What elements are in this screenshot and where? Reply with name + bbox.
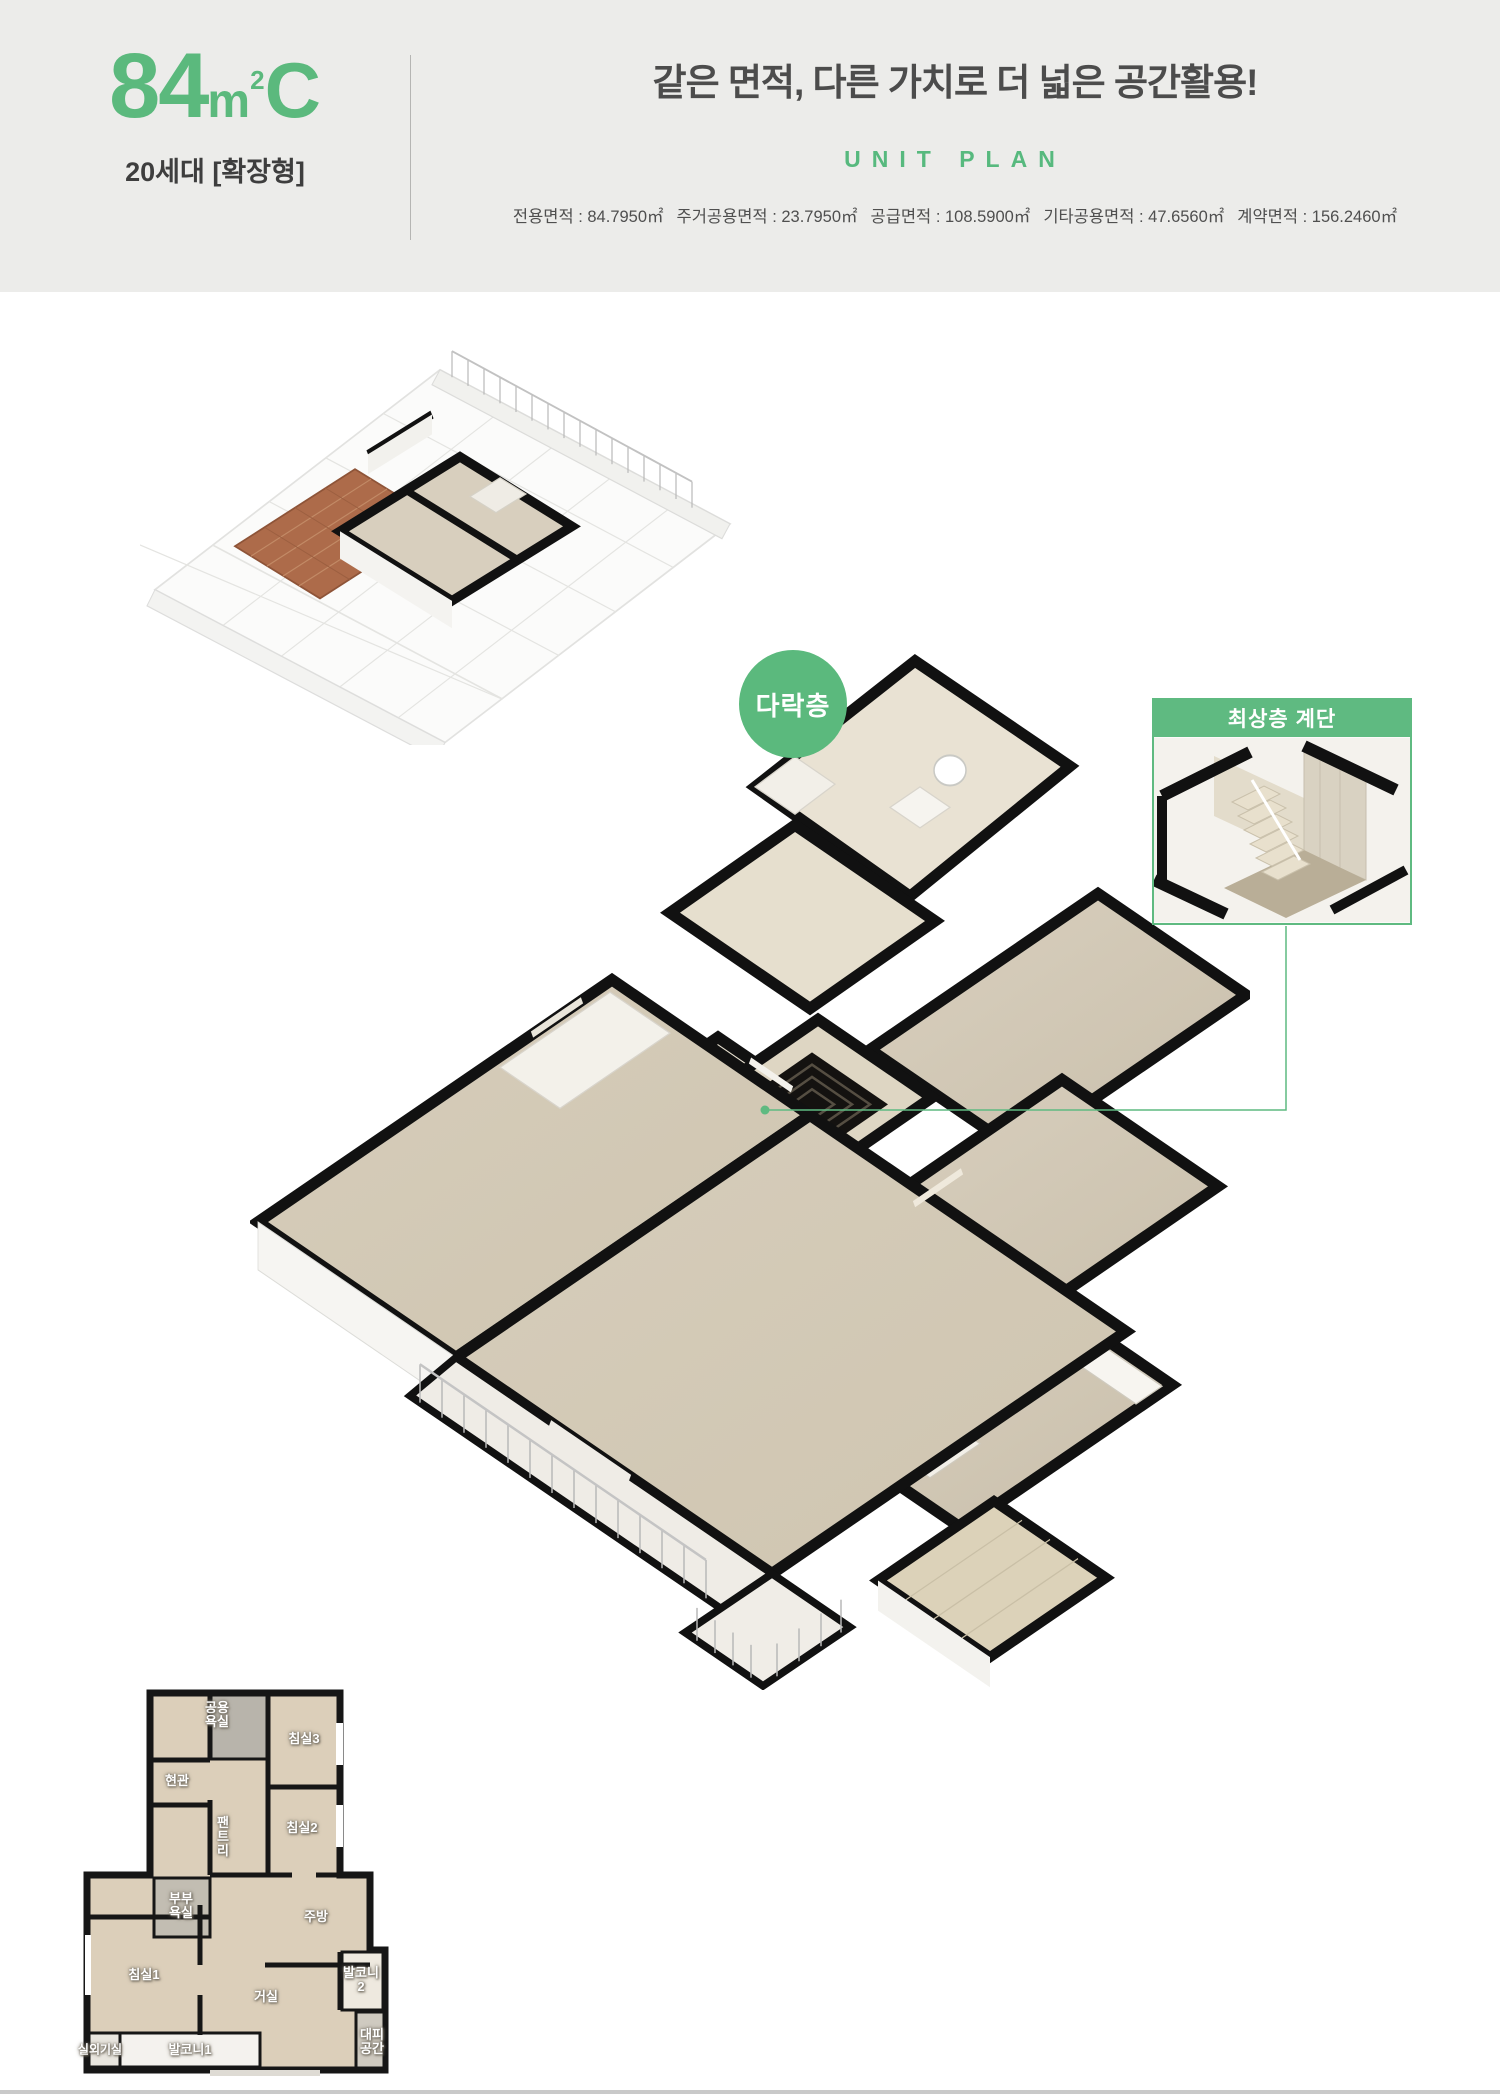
unit-plan-label: UNIT PLAN (420, 146, 1490, 173)
unit-number: 84 (109, 35, 207, 137)
unit-subtitle: 20세대 [확장형] (40, 150, 390, 189)
room-label-master-bath: 부부 욕실 (169, 1892, 193, 1920)
unit-type-letter: C (265, 46, 321, 134)
room-label-bedroom2: 침실2 (286, 1821, 317, 1835)
area-item: 계약면적 : 156.2460㎡ (1237, 203, 1397, 227)
room-label-pantry: 팬 트 리 (217, 1816, 229, 1858)
stairs-illustration (1154, 737, 1410, 923)
room-label-ac-room: 실외기실 (78, 2044, 122, 2057)
stairs-callout-image (1152, 737, 1412, 925)
room-label-kitchen: 주방 (304, 1910, 328, 1924)
room-label-refuge: 대피 공간 (360, 2028, 384, 2056)
unit-size-label: 84m2C (40, 40, 390, 132)
area-item: 주거공용면적 : 23.7950㎡ (677, 203, 858, 227)
header: 84m2C 20세대 [확장형] 같은 면적, 다른 가치로 더 넓은 공간활용… (0, 0, 1500, 292)
area-item: 기타공용면적 : 47.6560㎡ (1043, 203, 1224, 227)
header-divider (410, 55, 411, 240)
attic-badge: 다락층 (739, 650, 847, 758)
unit-size-block: 84m2C 20세대 [확장형] (40, 40, 390, 189)
room-label-balcony2: 발코니2 (342, 1966, 381, 1994)
unit-plan-page: 84m2C 20세대 [확장형] 같은 면적, 다른 가치로 더 넓은 공간활용… (0, 0, 1500, 2097)
unit-superscript: 2 (250, 65, 264, 95)
page-title: 같은 면적, 다른 가치로 더 넓은 공간활용! (420, 52, 1490, 106)
area-item: 전용면적 : 84.7950㎡ (513, 203, 664, 227)
room-label-bedroom3: 침실3 (288, 1732, 319, 1746)
main-floor-plan-image (250, 650, 1250, 1690)
stairs-callout-title: 최상층 계단 (1152, 698, 1412, 737)
room-label-entrance: 현관 (165, 1774, 189, 1788)
header-right: 같은 면적, 다른 가치로 더 넓은 공간활용! UNIT PLAN 전용면적 … (420, 0, 1490, 292)
mini-floor-plan-drawing (60, 1665, 400, 2090)
stairs-callout-box: 최상층 계단 (1152, 698, 1412, 925)
room-label-bedroom1: 침실1 (128, 1968, 159, 1982)
bottom-divider (0, 2090, 1500, 2094)
room-label-common-bath: 공용 욕실 (205, 1701, 229, 1729)
mini-floor-plan: 공용 욕실 침실3 현관 팬 트 리 침실2 부부 욕실 주방 침실1 거실 발… (60, 1665, 400, 2090)
room-label-living: 거실 (254, 1990, 278, 2004)
area-item: 공급면적 : 108.5900㎡ (871, 203, 1031, 227)
room-label-balcony1: 발코니1 (168, 2043, 211, 2057)
unit-m: m (207, 75, 250, 128)
area-info: 전용면적 : 84.7950㎡ 주거공용면적 : 23.7950㎡ 공급면적 :… (420, 203, 1490, 227)
